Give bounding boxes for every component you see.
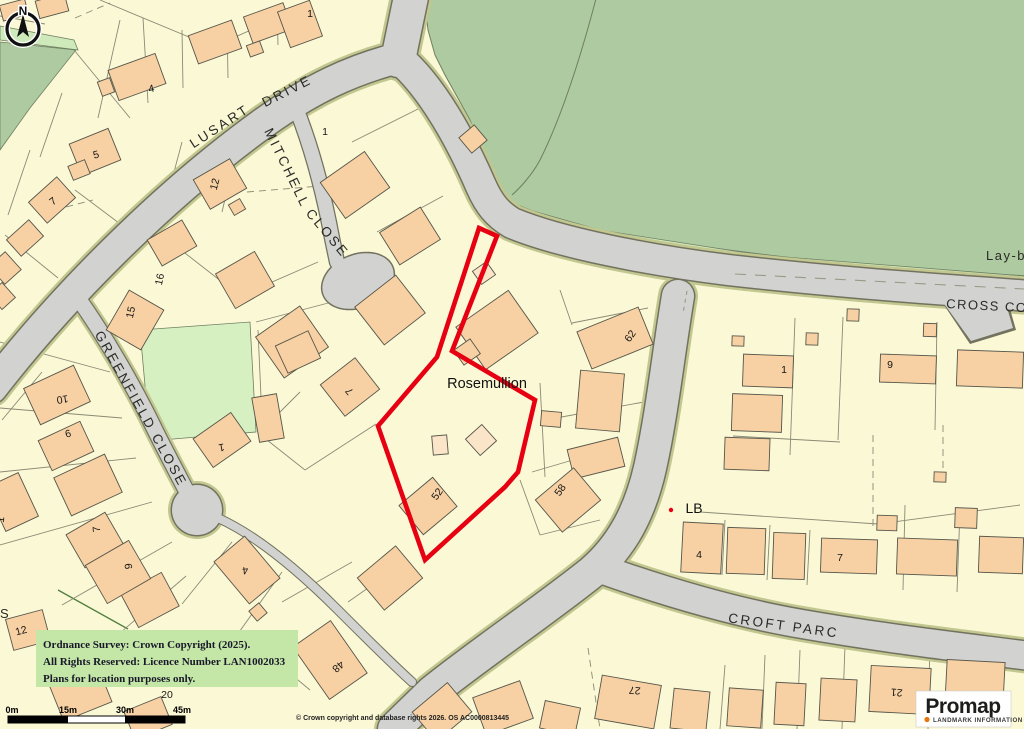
building (732, 336, 744, 346)
building (978, 536, 1023, 574)
promap-logo: Promap LANDMARK INFORMATION (916, 691, 1023, 727)
house-number: 20 (161, 689, 173, 701)
house-number: 9 (887, 359, 893, 371)
building (726, 527, 766, 574)
landmark-dot-icon (924, 717, 929, 722)
building (576, 370, 625, 432)
os-attribution: © Crown copyright and database rights 20… (296, 714, 509, 722)
house-number: 21 (890, 685, 903, 698)
house-number: 7 (837, 552, 843, 564)
house-number: 7 (91, 526, 103, 533)
scale-tick-label: 45m (173, 705, 191, 715)
building (670, 688, 710, 729)
scale-tick-label: 0m (5, 705, 18, 715)
house-number: 1 (307, 8, 313, 20)
house-number: 1 (322, 126, 328, 138)
scale-tick-label: 15m (59, 705, 77, 715)
house-number: 9 (123, 563, 135, 570)
building (877, 515, 898, 531)
copyright-line-1: Ordnance Survey: Crown Copyright (2025). (43, 639, 251, 651)
scale-bar-segment (125, 716, 185, 723)
building (819, 678, 857, 722)
building (731, 394, 782, 433)
house-number: 1 (781, 364, 787, 376)
copyright-line-2: All Rights Reserved: Licence Number LAN1… (43, 656, 286, 668)
building (772, 532, 806, 579)
letter-box-label: LB (685, 500, 702, 516)
landmark-tagline: LANDMARK INFORMATION (933, 717, 1023, 724)
street-label-partial-s: S (0, 606, 10, 621)
building (956, 350, 1023, 388)
scale-tick-label: 30m (116, 705, 134, 715)
scale-bar-segment (8, 716, 68, 723)
building (896, 538, 957, 576)
building (432, 435, 449, 455)
building (955, 508, 978, 529)
building (774, 682, 806, 726)
building (540, 411, 561, 428)
house-number: 4 (696, 549, 702, 561)
copyright-line-3: Plans for location purposes only. (43, 673, 196, 685)
building (820, 538, 877, 574)
house-number: 4 (242, 564, 249, 576)
north-label: N (19, 4, 28, 18)
street-label-lay-by: Lay-b (986, 248, 1024, 263)
map-canvas[interactable]: LUSART DRIVE MITCHELL CLOSE GREENFIELD C… (0, 0, 1024, 729)
copyright-notice: Ordnance Survey: Crown Copyright (2025).… (36, 630, 298, 687)
building (727, 688, 764, 728)
building (724, 437, 770, 471)
house-number: 10 (56, 392, 69, 406)
plot-label-rosemullion: Rosemullion (447, 376, 527, 392)
map-viewport[interactable]: LUSART DRIVE MITCHELL CLOSE GREENFIELD C… (0, 0, 1024, 729)
building (847, 309, 859, 321)
promap-logo-text: Promap (925, 695, 1000, 718)
letter-box-dot (669, 508, 673, 512)
building (934, 472, 946, 482)
house-number: 27 (628, 683, 641, 696)
building (681, 522, 724, 574)
building (806, 333, 818, 345)
building (923, 323, 936, 336)
